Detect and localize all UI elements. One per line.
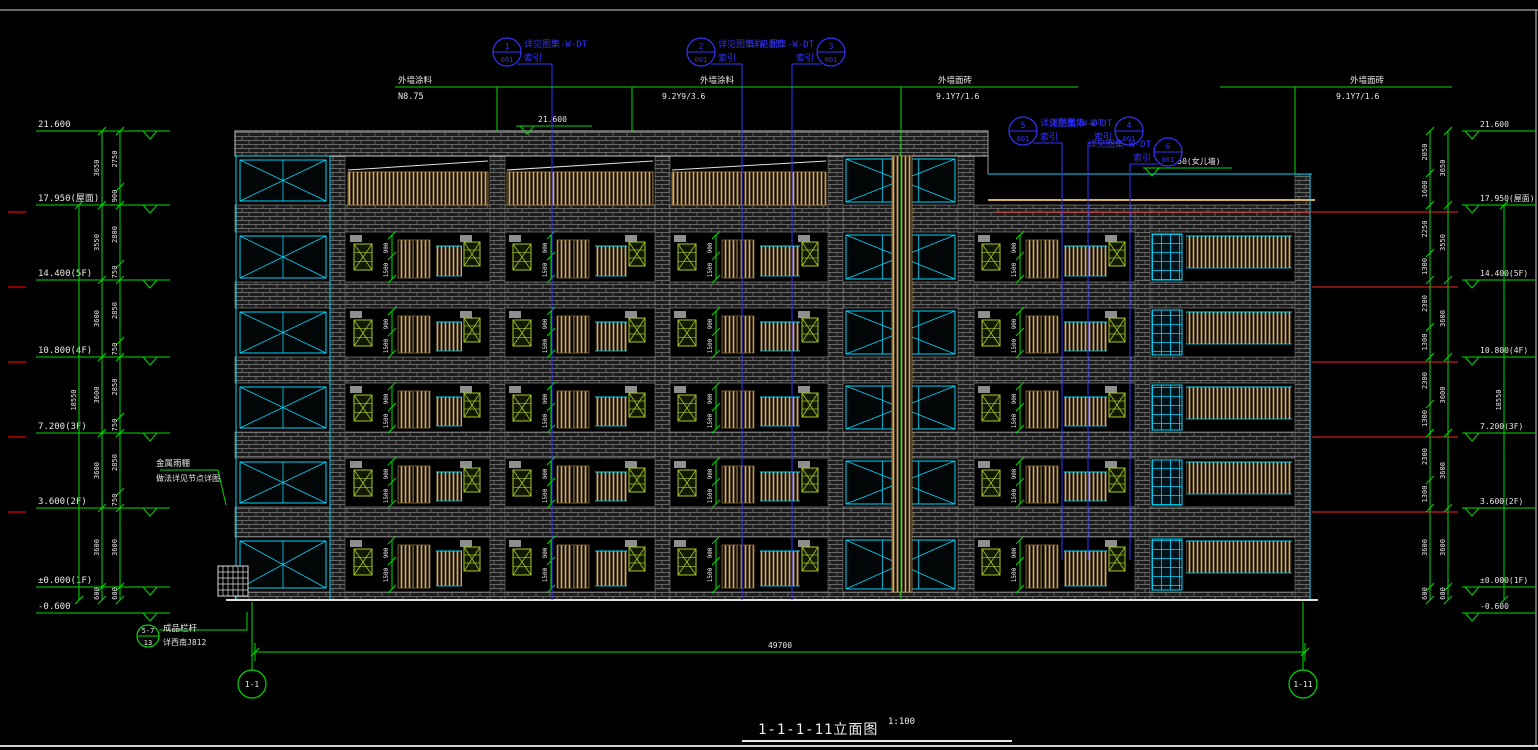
note-text: 外墙面砖 [1350,75,1385,86]
note-text: 外墙涂料 [398,75,433,86]
axis-label: 1-11 [1293,680,1312,689]
roof-louver-strip [507,172,653,205]
vent-block [978,461,990,468]
bay-dim-value: 1500 [542,488,549,503]
vent-block [798,540,810,547]
vent-block [978,311,990,318]
vent-block [978,540,990,547]
bay-dim-value: 1500 [542,413,549,428]
dim-right-sub-value: 1600 [1421,181,1429,198]
dim-left-sub-value: 750 [111,494,119,507]
elevation-triangle [1465,433,1479,441]
dim-right-sub-value: 1300 [1421,258,1429,275]
bay-dim-value: 900 [542,468,549,479]
note-text: 金属雨棚 [156,458,190,469]
note-text: 做法详见节点详图 [156,473,220,483]
elevation-triangle [143,433,157,441]
balcony-railing [595,322,627,351]
elevation-label: 7.200(3F) [1480,422,1523,431]
bay-dim-value: 900 [707,468,714,479]
balcony-railing [1064,322,1107,351]
callout-text: 详见图集-W-DT [524,38,588,50]
callout-number: 5 [1021,121,1026,130]
callout-number: 3 [829,42,834,51]
bay-dim-value: 1500 [1011,413,1018,428]
vent-block [460,461,472,468]
vent-block [460,311,472,318]
vent-block [674,540,686,547]
dim-right-sub-value: 2050 [1421,144,1429,161]
balcony-railing [595,472,627,501]
brick-pier [1295,174,1310,600]
corridor-grid-window [1152,539,1182,590]
elevation-label: 14.400(5F) [38,269,92,279]
callout-number: 2 [699,42,704,51]
bay-dim-value: 900 [1011,318,1018,329]
balcony-railing [760,322,800,351]
bay-dim-value: 900 [542,242,549,253]
parapet-band [235,131,988,156]
vent-block [460,235,472,242]
callout-text: 详见图集-W-DT [1049,117,1113,129]
bay-dim-value: 1500 [707,262,714,277]
brick-pier [490,156,505,600]
bay-dim-value: 900 [707,318,714,329]
elevation-triangle [1465,131,1479,139]
callout-sheet: 001 [695,56,708,64]
dim-right-floor-value: 600 [1439,587,1447,600]
drawing-scale: 1:100 [888,717,915,727]
dim-left-floor-value: 3650 [93,160,101,177]
bay-dim-value: 900 [383,318,390,329]
elevation-triangle [143,357,157,365]
bay-dim-value: 900 [542,393,549,404]
vent-block [1105,540,1117,547]
balcony-railing [436,322,462,351]
balcony-railing [760,472,800,501]
vent-block [350,311,362,318]
brick-pier [330,156,345,600]
dim-left-sub-value: 2800 [111,226,119,243]
elevation-triangle [143,205,157,213]
callout-subtext: 索引 [524,52,542,64]
bay-dim-value: 1500 [1011,488,1018,503]
elevation-label: 10.800(4F) [38,346,92,356]
callout-number: 4 [1127,121,1132,130]
elevation-triangle [1465,205,1479,213]
elevation-triangle [143,613,157,621]
note-text: 外墙涂料 [700,75,735,86]
corridor-railing [1186,541,1292,573]
corridor-railing [1186,387,1292,419]
roof-slope-line [672,161,826,170]
note-text: 详西南J812 [163,637,206,647]
corridor-grid-window [1152,310,1182,355]
note-text: 9.2Y9/3.6 [662,92,706,101]
balcony-railing [1064,472,1107,501]
bay-dim-value: 900 [383,468,390,479]
bay-dim-value: 1500 [542,567,549,582]
dim-right-sub-value: 2250 [1421,221,1429,238]
note-text: N8.75 [398,92,424,102]
corridor-railing [1186,236,1292,268]
dim-left-floor-value: 3600 [93,387,101,404]
note-text: 9.1Y7/1.6 [1336,92,1380,101]
callout-sheet: 001 [1017,135,1030,143]
vent-block [674,461,686,468]
dim-left-floor-value: 3550 [93,234,101,251]
vent-block [509,235,521,242]
vent-block [978,235,990,242]
dim-left-sub-value: 2850 [111,379,119,396]
vent-block [509,461,521,468]
elevation-label: 21.600 [38,120,71,130]
roof-slope-line [348,161,488,170]
dim-right-floor-value: 3600 [1439,462,1447,479]
vent-block [625,311,637,318]
dim-right-sub-value: 2300 [1421,295,1429,312]
bay-dim-value: 1500 [383,413,390,428]
balcony-railing [760,397,800,426]
note-text: 9.1Y7/1.6 [936,92,980,101]
roof-louver-strip [348,172,488,205]
bay-dim-value: 1500 [1011,567,1018,582]
dim-left-sub-value: 900 [111,190,119,203]
callout-sheet: 001 [1162,156,1175,164]
note-text: 外墙面砖 [938,75,973,86]
bay-dim-value: 1500 [707,488,714,503]
elevation-label: -0.600 [38,602,71,612]
vent-block [625,386,637,393]
dim-left-sub-value: 750 [111,419,119,432]
callout-sheet: 001 [825,56,838,64]
bay-dim-value: 900 [542,318,549,329]
brick-pier [655,156,670,600]
balcony-railing [1064,551,1107,586]
dim-right-sub-value: 3600 [1421,539,1429,556]
corridor-grid-window [1152,234,1182,280]
vent-block [460,540,472,547]
dim-right-sub-value: 1300 [1421,334,1429,351]
elevation-triangle [1465,280,1479,288]
elevation-svg: 9001500900150090015009001500900150090015… [0,0,1538,750]
vent-block [625,540,637,547]
corridor-railing [1186,312,1292,344]
dim-total-value: 18550 [1495,389,1503,410]
dim-left-sub-value: 750 [111,343,119,356]
dim-right-floor-value: 3650 [1439,160,1447,177]
bay-dim-value: 900 [707,242,714,253]
vent-block [674,235,686,242]
vent-block [798,235,810,242]
vent-block [350,461,362,468]
dim-right-sub-value: 2300 [1421,448,1429,465]
elevation-triangle [143,587,157,595]
corridor-railing [1186,462,1292,494]
vent-block [798,386,810,393]
dim-left-floor-value: 600 [93,587,101,600]
roof-slope-line [507,161,653,170]
bay-dim-value: 1500 [383,262,390,277]
corridor-grid-window [1152,460,1182,505]
balcony-railing [436,472,462,501]
dim-right-sub-value: 600 [1421,587,1429,600]
vent-block [674,386,686,393]
bay-dim-value: 900 [707,547,714,558]
bay-dim-value: 900 [383,242,390,253]
dim-right-floor-value: 3600 [1439,387,1447,404]
note-text: 成品栏杆 [163,623,198,634]
vent-block [978,386,990,393]
brick-pier [1135,205,1150,600]
callout-subtext: 索引 [796,52,814,64]
drawing-title-block: 1-1-1-11立面图 1:100 [742,717,1012,742]
bay-dim-value: 900 [1011,468,1018,479]
note-bubble-top: 5-7 [142,627,155,635]
note-bubble-bottom: 13 [144,639,152,647]
elevation-triangle [143,508,157,516]
axis-label: 1-1 [245,680,260,689]
callout-subtext: 索引 [1133,152,1151,164]
bay-dim-value: 1500 [383,488,390,503]
bay-dim-value: 1500 [1011,338,1018,353]
roof-louver-strip [672,172,826,205]
bay-dim-value: 1500 [707,338,714,353]
elevation-triangle [1465,587,1479,595]
dim-left-floor-value: 3600 [93,462,101,479]
dim-left-sub-value: 750 [111,266,119,279]
elevation-triangle [1465,508,1479,516]
drawing-title: 1-1-1-11立面图 [758,719,878,739]
elevation-triangle [1465,357,1479,365]
bay-dim-value: 900 [707,393,714,404]
vent-block [625,461,637,468]
elevation-label: 3.600(2F) [1480,497,1523,506]
callout-subtext: 索引 [1040,131,1058,143]
vent-block [509,386,521,393]
dim-right-floor-value: 3550 [1439,234,1447,251]
balcony-railing [760,551,800,586]
vent-block [1105,461,1117,468]
callout-sheet: 001 [501,56,514,64]
dim-right-sub-value: 1300 [1421,486,1429,503]
elevation-label: ±0.000(1F) [38,576,92,586]
elevation-label: 17.950(屋面) [38,193,99,204]
callout-number: 6 [1166,142,1171,151]
elevation-triangle [1465,613,1479,621]
vent-block [509,540,521,547]
dim-right-sub-value: 1300 [1421,410,1429,427]
corridor-grid-window [1152,385,1182,430]
balcony-railing [436,551,462,586]
callout-number: 1 [505,42,510,51]
vent-block [509,311,521,318]
balcony-railing [436,397,462,426]
dim-right-floor-value: 3600 [1439,310,1447,327]
dim-left-sub-value: 3600 [111,539,119,556]
vent-block [350,540,362,547]
dim-right-sub-value: 2300 [1421,372,1429,389]
balcony-railing [595,397,627,426]
bay-dim-value: 1500 [707,567,714,582]
balcony-railing [760,246,800,276]
cad-viewport: 9001500900150090015009001500900150090015… [0,0,1538,750]
bay-dim-value: 1500 [383,338,390,353]
brick-pier [958,156,974,600]
bay-dim-value: 900 [1011,393,1018,404]
dim-left-sub-value: 2850 [111,454,119,471]
dim-left-floor-value: 3600 [93,310,101,327]
balcony-railing [595,246,627,276]
dim-left-floor-value: 3600 [93,539,101,556]
vent-block [798,461,810,468]
callout-text: 详见图集-W-DT [1088,138,1152,150]
bay-dim-value: 900 [1011,547,1018,558]
vent-block [350,386,362,393]
callout-subtext: 索引 [718,52,736,64]
balcony-railing [1064,397,1107,426]
bay-dim-value: 1500 [383,567,390,582]
balcony-railing [595,551,627,586]
bay-dim-value: 1500 [542,262,549,277]
vent-block [460,386,472,393]
callout-text: 详见图集-W-DT [751,38,815,50]
elevation-triangle [143,131,157,139]
dim-right-floor-value: 3600 [1439,539,1447,556]
bay-dim-value: 1500 [1011,262,1018,277]
dim-left-sub-value: 2850 [111,302,119,319]
bay-dim-value: 900 [383,393,390,404]
balcony-railing [436,246,462,276]
dim-total-value: 18550 [70,389,78,410]
brick-pier [828,156,843,600]
bay-dim-value: 900 [542,547,549,558]
bay-dim-value: 1500 [707,413,714,428]
elevation-triangle [1145,168,1159,176]
vent-block [1105,311,1117,318]
elevation-label: 21.600 [1480,120,1509,129]
bay-dim-value: 900 [1011,242,1018,253]
vent-block [674,311,686,318]
balcony-railing [1064,246,1107,276]
elevation-label: 21.600 [538,115,567,124]
vent-block [625,235,637,242]
elevator-strip [892,156,912,592]
bottom-dim-value: 49700 [768,641,792,650]
elevation-label: -0.600 [1480,602,1509,611]
bay-dim-value: 900 [383,547,390,558]
elevation-triangle [143,280,157,288]
bay-dim-value: 1500 [542,338,549,353]
dim-left-sub-value: 2750 [111,151,119,168]
vent-block [1105,235,1117,242]
vent-block [350,235,362,242]
vent-block [1105,386,1117,393]
dim-left-sub-value: 600 [111,587,119,600]
vent-block [798,311,810,318]
